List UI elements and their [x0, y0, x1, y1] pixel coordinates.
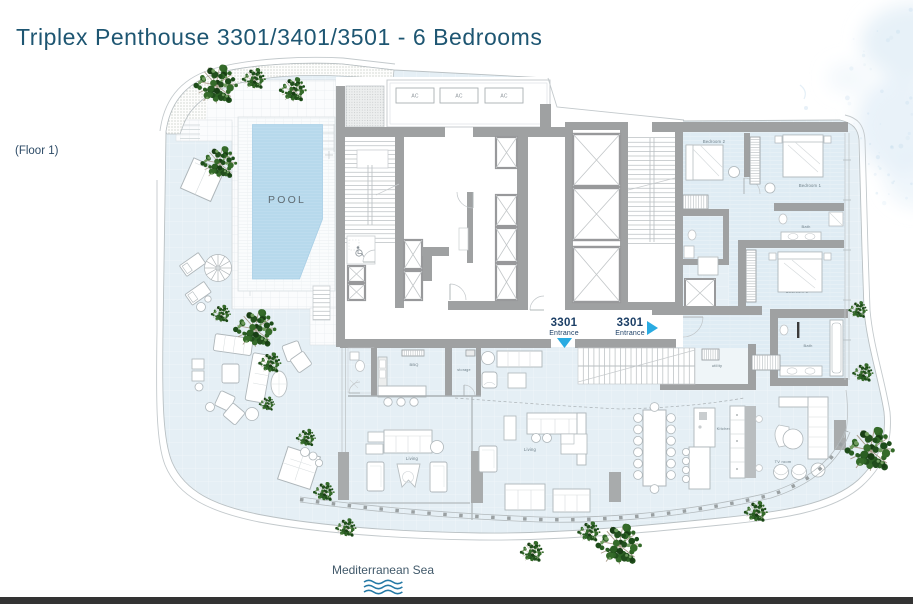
svg-text:utility: utility: [712, 363, 723, 368]
svg-text:storage: storage: [457, 368, 470, 372]
svg-text:Triplex Penthouse 3301/3401/35: Triplex Penthouse 3301/3401/3501 - 6 Bed…: [16, 24, 542, 50]
svg-text:BBQ: BBQ: [409, 362, 418, 367]
svg-text:(Floor 1): (Floor 1): [15, 145, 59, 157]
svg-text:AC: AC: [455, 94, 463, 100]
svg-text:AC: AC: [411, 94, 419, 100]
svg-text:POOL: POOL: [268, 194, 306, 206]
svg-text:Bath: Bath: [803, 343, 812, 348]
svg-text:Bedroom 2: Bedroom 2: [703, 139, 726, 144]
svg-text:3301: 3301: [551, 317, 578, 329]
svg-text:Entrance: Entrance: [549, 330, 579, 337]
svg-text:Living: Living: [524, 447, 537, 452]
svg-text:Kitchen: Kitchen: [717, 426, 732, 431]
svg-text:TV room: TV room: [775, 459, 792, 464]
svg-text:Bedroom 1: Bedroom 1: [799, 183, 822, 188]
svg-text:Bath: Bath: [801, 224, 810, 229]
svg-text:3301: 3301: [617, 317, 644, 329]
svg-text:AC: AC: [500, 94, 508, 100]
svg-text:Living: Living: [406, 456, 419, 461]
svg-text:Entrance: Entrance: [615, 330, 645, 337]
svg-text:Mediterranean Sea: Mediterranean Sea: [332, 563, 434, 577]
